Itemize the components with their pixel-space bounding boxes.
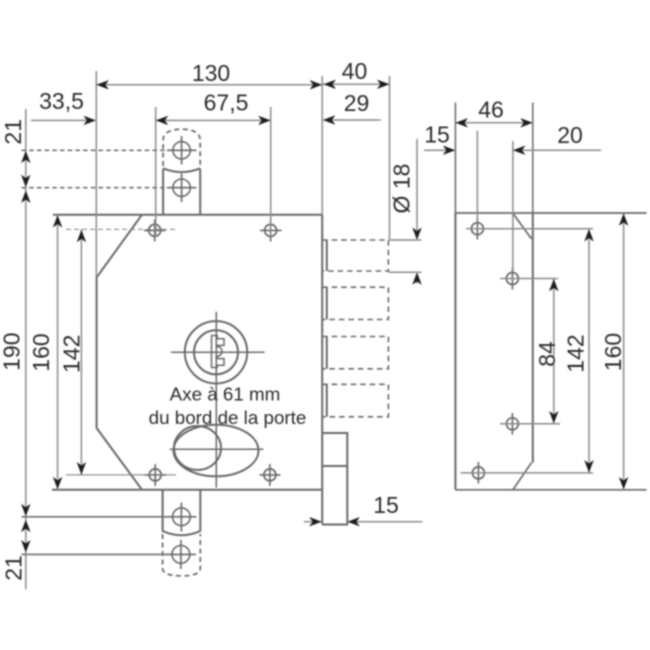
svg-text:20: 20 <box>557 122 583 148</box>
svg-text:190: 190 <box>0 333 25 371</box>
svg-text:46: 46 <box>478 97 504 123</box>
svg-text:142: 142 <box>563 334 589 372</box>
svg-text:84: 84 <box>534 341 560 367</box>
svg-text:15: 15 <box>424 122 450 148</box>
svg-text:du bord de la porte: du bord de la porte <box>149 407 307 428</box>
svg-text:160: 160 <box>28 333 54 371</box>
svg-text:160: 160 <box>600 333 626 371</box>
svg-text:40: 40 <box>342 58 368 84</box>
svg-text:21: 21 <box>0 119 26 145</box>
svg-text:Ø 18: Ø 18 <box>389 164 415 214</box>
svg-text:130: 130 <box>192 60 230 86</box>
svg-text:29: 29 <box>344 90 370 116</box>
svg-text:67,5: 67,5 <box>204 90 249 116</box>
svg-text:33,5: 33,5 <box>39 88 84 114</box>
svg-text:142: 142 <box>59 335 85 373</box>
svg-text:21: 21 <box>1 555 27 581</box>
svg-text:15: 15 <box>373 492 399 518</box>
svg-text:Axe à 61 mm: Axe à 61 mm <box>170 384 281 405</box>
